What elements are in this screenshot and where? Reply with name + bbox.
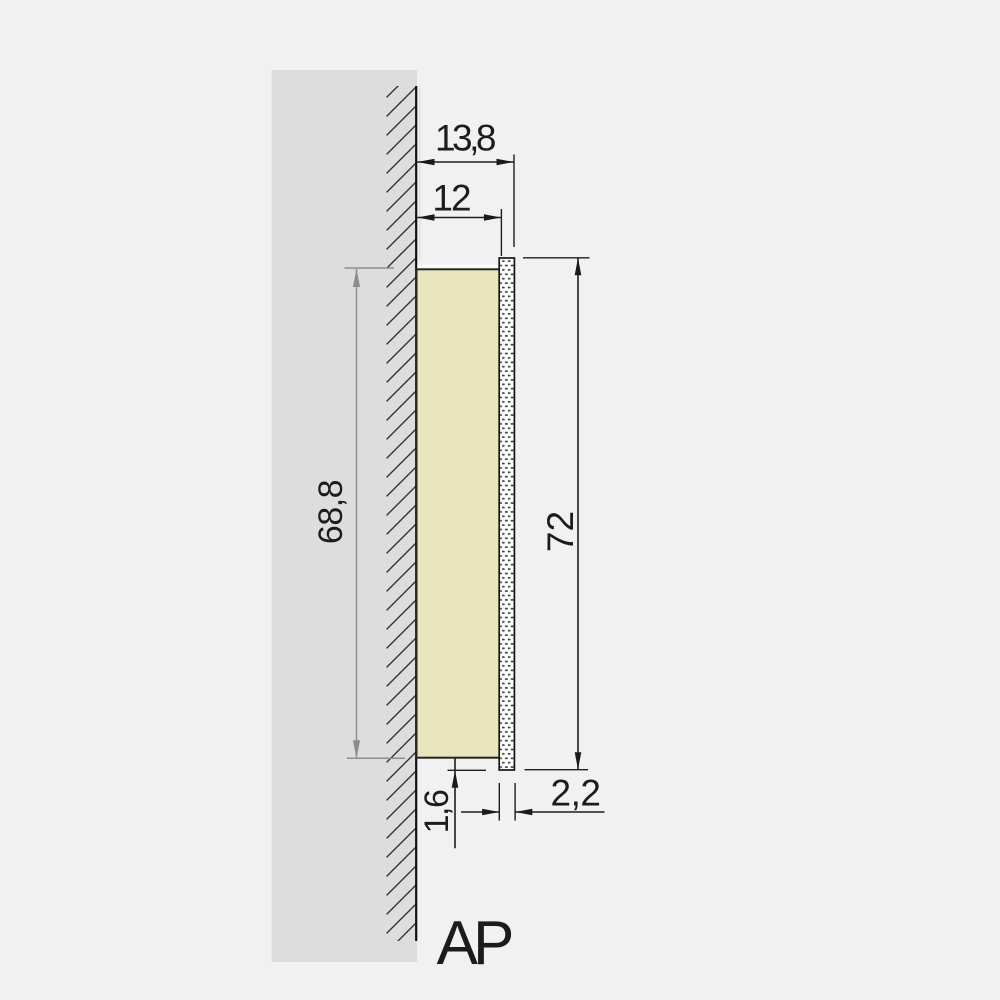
svg-text:13,8: 13,8 (435, 118, 495, 159)
svg-text:68,8: 68,8 (312, 480, 350, 544)
svg-text:AP: AP (437, 909, 512, 978)
svg-text:2,2: 2,2 (551, 773, 601, 814)
svg-text:72: 72 (540, 511, 581, 552)
svg-text:1,6: 1,6 (418, 790, 456, 833)
svg-text:12: 12 (432, 178, 470, 219)
